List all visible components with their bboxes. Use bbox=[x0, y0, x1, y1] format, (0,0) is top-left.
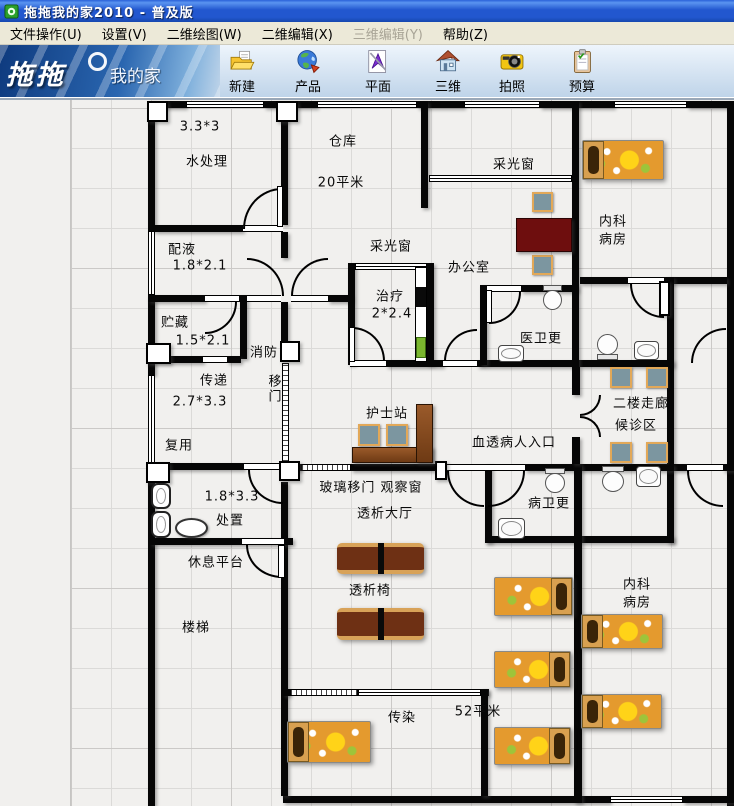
toilet-bowl bbox=[602, 471, 624, 492]
door-opening[interactable] bbox=[203, 356, 227, 363]
hospital-bed[interactable] bbox=[581, 614, 663, 649]
chair[interactable] bbox=[386, 424, 408, 446]
room-label: 病房 bbox=[623, 592, 651, 611]
cabinet-green-item bbox=[416, 337, 426, 358]
room-label: 1.8*2.1 bbox=[173, 259, 228, 274]
sliding-glass-window[interactable] bbox=[282, 363, 289, 462]
toolbar-button-label: 新建 bbox=[229, 76, 255, 95]
room-label: 3.3*3 bbox=[180, 120, 220, 135]
dialysis-chair-divider bbox=[378, 543, 384, 574]
chair[interactable] bbox=[646, 367, 668, 388]
wall-segment[interactable] bbox=[683, 796, 734, 803]
door-opening[interactable] bbox=[242, 538, 284, 545]
sink-bowl bbox=[501, 348, 521, 359]
floorplan-canvas[interactable]: 3.3*3水处理仓库20平米采光窗内科病房配液1.8*2.1采光窗办公室治疗2*… bbox=[0, 100, 734, 806]
toolbar-button-new[interactable]: 新建 bbox=[216, 47, 268, 95]
bed-pillow bbox=[587, 700, 598, 723]
door-leaf[interactable] bbox=[278, 545, 285, 578]
wall-segment[interactable] bbox=[227, 356, 241, 363]
toolbar-button-label: 三维 bbox=[435, 76, 461, 95]
door-opening[interactable] bbox=[244, 463, 282, 470]
room-label: 内科 bbox=[623, 574, 651, 593]
bed-headboard bbox=[549, 652, 570, 687]
room-label: 医卫更 bbox=[520, 328, 562, 347]
wall-segment[interactable] bbox=[580, 277, 628, 284]
dialysis-chair[interactable] bbox=[337, 608, 424, 640]
room-label: 水处理 bbox=[186, 151, 228, 170]
window[interactable] bbox=[610, 796, 683, 803]
toilet[interactable] bbox=[545, 468, 565, 494]
wall-column[interactable] bbox=[146, 343, 171, 364]
window[interactable] bbox=[148, 375, 155, 465]
window[interactable] bbox=[358, 689, 481, 696]
toolbar-button-label: 拍照 bbox=[499, 76, 525, 95]
wall-segment[interactable] bbox=[572, 437, 580, 464]
sink-bowl bbox=[637, 344, 656, 357]
room-label: 传递 bbox=[200, 370, 228, 389]
door-leaf[interactable] bbox=[349, 327, 355, 362]
room-label: 护士站 bbox=[366, 403, 408, 422]
menu-item-draw2d[interactable]: 二维绘图(W) bbox=[157, 21, 252, 46]
room-label: 玻璃移门 观察窗 bbox=[319, 477, 422, 496]
door-opening[interactable] bbox=[247, 295, 281, 302]
menu-item-help[interactable]: 帮助(Z) bbox=[433, 21, 498, 46]
bed-pillow bbox=[554, 657, 565, 682]
door-leaf[interactable] bbox=[486, 290, 492, 323]
door-opening[interactable] bbox=[350, 360, 386, 367]
logo-brand-text: 拖拖 bbox=[6, 53, 66, 92]
basin-bowl bbox=[156, 516, 166, 533]
room-label: 采光窗 bbox=[493, 154, 535, 173]
wall-segment[interactable] bbox=[351, 464, 435, 471]
chair[interactable] bbox=[646, 442, 668, 463]
sink[interactable] bbox=[636, 466, 661, 487]
bed-pillow bbox=[556, 583, 567, 610]
room-label: 2*2.4 bbox=[372, 307, 412, 322]
sliding-glass-window[interactable] bbox=[301, 464, 351, 471]
room-label: 透析大厅 bbox=[357, 503, 413, 522]
logo-ring-icon bbox=[88, 52, 107, 71]
door-opening[interactable] bbox=[687, 464, 723, 471]
room-label: 候诊区 bbox=[615, 415, 657, 434]
room-label: 血透病人入口 bbox=[472, 432, 556, 451]
room-label: 楼梯 bbox=[182, 617, 210, 636]
room-label: 贮藏 bbox=[161, 312, 189, 331]
wall-column[interactable] bbox=[280, 341, 300, 362]
room-label: 处置 bbox=[216, 510, 244, 529]
bed-headboard bbox=[551, 578, 572, 615]
hospital-bed[interactable] bbox=[287, 721, 371, 763]
wall-segment[interactable] bbox=[427, 263, 434, 365]
hospital-bed[interactable] bbox=[581, 694, 662, 729]
wash-basin[interactable] bbox=[151, 483, 171, 509]
bed-headboard bbox=[288, 722, 309, 762]
wall-segment[interactable] bbox=[727, 101, 734, 806]
office-table[interactable] bbox=[516, 218, 572, 252]
toolbar: 拖拖 我的家 新建 产品 平面 bbox=[0, 45, 734, 97]
sink[interactable] bbox=[498, 518, 525, 539]
room-label: 二楼走廊 bbox=[613, 393, 669, 412]
cabinet-dark-section bbox=[416, 287, 426, 307]
toilet-bowl bbox=[545, 473, 565, 493]
bed-pillow bbox=[554, 733, 565, 759]
room-label: 内科 bbox=[599, 211, 627, 230]
menu-item-file[interactable]: 文件操作(U) bbox=[0, 21, 92, 46]
window[interactable] bbox=[464, 101, 540, 108]
wall-segment[interactable] bbox=[581, 536, 674, 543]
wall-segment[interactable] bbox=[148, 295, 205, 302]
wall-segment[interactable] bbox=[578, 360, 674, 367]
wall-segment[interactable] bbox=[239, 295, 247, 302]
door-leaf[interactable] bbox=[277, 186, 283, 227]
chair[interactable] bbox=[358, 424, 380, 446]
wall-segment[interactable] bbox=[281, 302, 288, 341]
sink-bowl bbox=[501, 521, 522, 536]
wall-segment[interactable] bbox=[572, 101, 579, 367]
door-opening[interactable] bbox=[447, 464, 525, 471]
room-label: 休息平台 bbox=[188, 552, 244, 571]
toolbar-button-budget[interactable]: 预算 bbox=[556, 47, 608, 95]
wall-segment[interactable] bbox=[723, 464, 734, 471]
window[interactable] bbox=[317, 101, 417, 108]
products-globe-icon bbox=[293, 48, 323, 75]
wall-segment[interactable] bbox=[240, 302, 247, 359]
toolbar-button-label: 平面 bbox=[365, 76, 391, 95]
room-label: 病房 bbox=[599, 229, 627, 248]
room-label: 1.5*2.1 bbox=[176, 334, 231, 349]
wall-column[interactable] bbox=[435, 461, 447, 480]
room-label: 透析椅 bbox=[349, 580, 391, 599]
house-3d-icon bbox=[433, 48, 463, 75]
menu-item-edit2d[interactable]: 二维编辑(X) bbox=[252, 21, 343, 46]
hospital-bed[interactable] bbox=[582, 140, 664, 180]
door-opening[interactable] bbox=[443, 360, 477, 367]
room-label: 办公室 bbox=[448, 257, 490, 276]
chair[interactable] bbox=[610, 367, 632, 388]
door-opening[interactable] bbox=[291, 295, 328, 302]
chair[interactable] bbox=[532, 192, 553, 212]
wall-segment[interactable] bbox=[674, 464, 687, 471]
toolbar-button-plan[interactable]: 平面 bbox=[352, 47, 404, 95]
bed-pillow bbox=[293, 727, 304, 757]
room-label: 消防 bbox=[250, 342, 278, 361]
bed-pillow bbox=[588, 146, 599, 174]
app-logo: 拖拖 我的家 bbox=[0, 45, 220, 97]
new-folder-icon bbox=[227, 48, 257, 75]
room-label: 20平米 bbox=[318, 172, 365, 191]
window[interactable] bbox=[614, 101, 687, 108]
wall-segment[interactable] bbox=[155, 225, 243, 232]
room-label: 仓库 bbox=[329, 131, 357, 150]
bed-headboard bbox=[582, 695, 603, 728]
nurse-station-desk[interactable] bbox=[416, 404, 433, 463]
logo-sub-text: 我的家 bbox=[110, 62, 161, 87]
wall-segment[interactable] bbox=[281, 232, 288, 258]
toolbar-button-label: 预算 bbox=[569, 76, 595, 95]
chair[interactable] bbox=[610, 442, 632, 463]
bed-headboard bbox=[549, 728, 570, 764]
bed-headboard bbox=[583, 141, 604, 179]
sink[interactable] bbox=[498, 345, 524, 362]
title-bar[interactable]: 拖拖我的家2010 - 普及版 bbox=[0, 0, 734, 22]
toilet-bowl bbox=[597, 334, 618, 355]
hospital-bed[interactable] bbox=[494, 651, 571, 688]
wall-column[interactable] bbox=[147, 101, 168, 122]
wall-column[interactable] bbox=[276, 101, 298, 122]
room-label: 治疗 bbox=[376, 286, 404, 305]
sliding-glass-window[interactable] bbox=[290, 689, 358, 696]
sink[interactable] bbox=[634, 341, 659, 360]
wall-column[interactable] bbox=[146, 462, 170, 483]
window[interactable] bbox=[186, 101, 264, 108]
room-label: 2.7*3.3 bbox=[173, 395, 228, 410]
toilet[interactable] bbox=[597, 333, 618, 360]
budget-clipboard-icon bbox=[567, 48, 597, 75]
toilet[interactable] bbox=[602, 466, 624, 493]
dialysis-chair-divider bbox=[378, 608, 384, 640]
app-icon bbox=[4, 4, 19, 19]
hospital-bed[interactable] bbox=[494, 727, 571, 765]
toilet[interactable] bbox=[543, 285, 562, 311]
wall-segment[interactable] bbox=[421, 101, 428, 208]
door-opening[interactable] bbox=[205, 295, 239, 302]
toolbar-button-snapshot[interactable]: 拍照 bbox=[486, 47, 538, 95]
treatment-tub[interactable] bbox=[175, 518, 208, 538]
window-title: 拖拖我的家2010 - 普及版 bbox=[24, 2, 194, 21]
room-label: 病卫更 bbox=[528, 493, 570, 512]
wall-segment[interactable] bbox=[572, 367, 580, 395]
bed-pillow bbox=[587, 620, 598, 643]
menu-bar[interactable]: 文件操作(U) 设置(V) 二维绘图(W) 二维编辑(X) 三维编辑(Y) 帮助… bbox=[0, 22, 734, 45]
basin-bowl bbox=[156, 488, 166, 504]
plan-2d-icon bbox=[363, 48, 393, 75]
room-label: 1.8*3.3 bbox=[205, 490, 260, 505]
bed-headboard bbox=[582, 615, 603, 648]
room-label: 配液 bbox=[168, 239, 196, 258]
room-label: 传染 bbox=[388, 707, 416, 726]
window[interactable] bbox=[429, 175, 572, 182]
wash-basin[interactable] bbox=[151, 511, 171, 538]
hospital-bed[interactable] bbox=[494, 577, 573, 616]
room-label: 52平米 bbox=[455, 701, 502, 720]
wall-segment[interactable] bbox=[283, 689, 290, 696]
snapshot-camera-icon bbox=[497, 48, 527, 75]
menu-item-edit3d: 三维编辑(Y) bbox=[343, 21, 433, 46]
sink-bowl bbox=[639, 469, 658, 484]
toolbar-button-label: 产品 bbox=[295, 76, 321, 95]
toolbar-button-products[interactable]: 产品 bbox=[282, 47, 334, 95]
door-opening[interactable] bbox=[487, 285, 521, 292]
chair[interactable] bbox=[532, 255, 553, 275]
toilet-bowl bbox=[543, 290, 562, 310]
wall-segment[interactable] bbox=[283, 796, 610, 803]
room-label: 移门 bbox=[264, 374, 283, 404]
window[interactable] bbox=[148, 231, 155, 295]
room-label: 复用 bbox=[165, 435, 193, 454]
dialysis-chair[interactable] bbox=[337, 543, 424, 574]
menu-item-settings[interactable]: 设置(V) bbox=[92, 21, 157, 46]
room-label: 采光窗 bbox=[370, 236, 412, 255]
toolbar-button-3d[interactable]: 三维 bbox=[422, 47, 474, 95]
